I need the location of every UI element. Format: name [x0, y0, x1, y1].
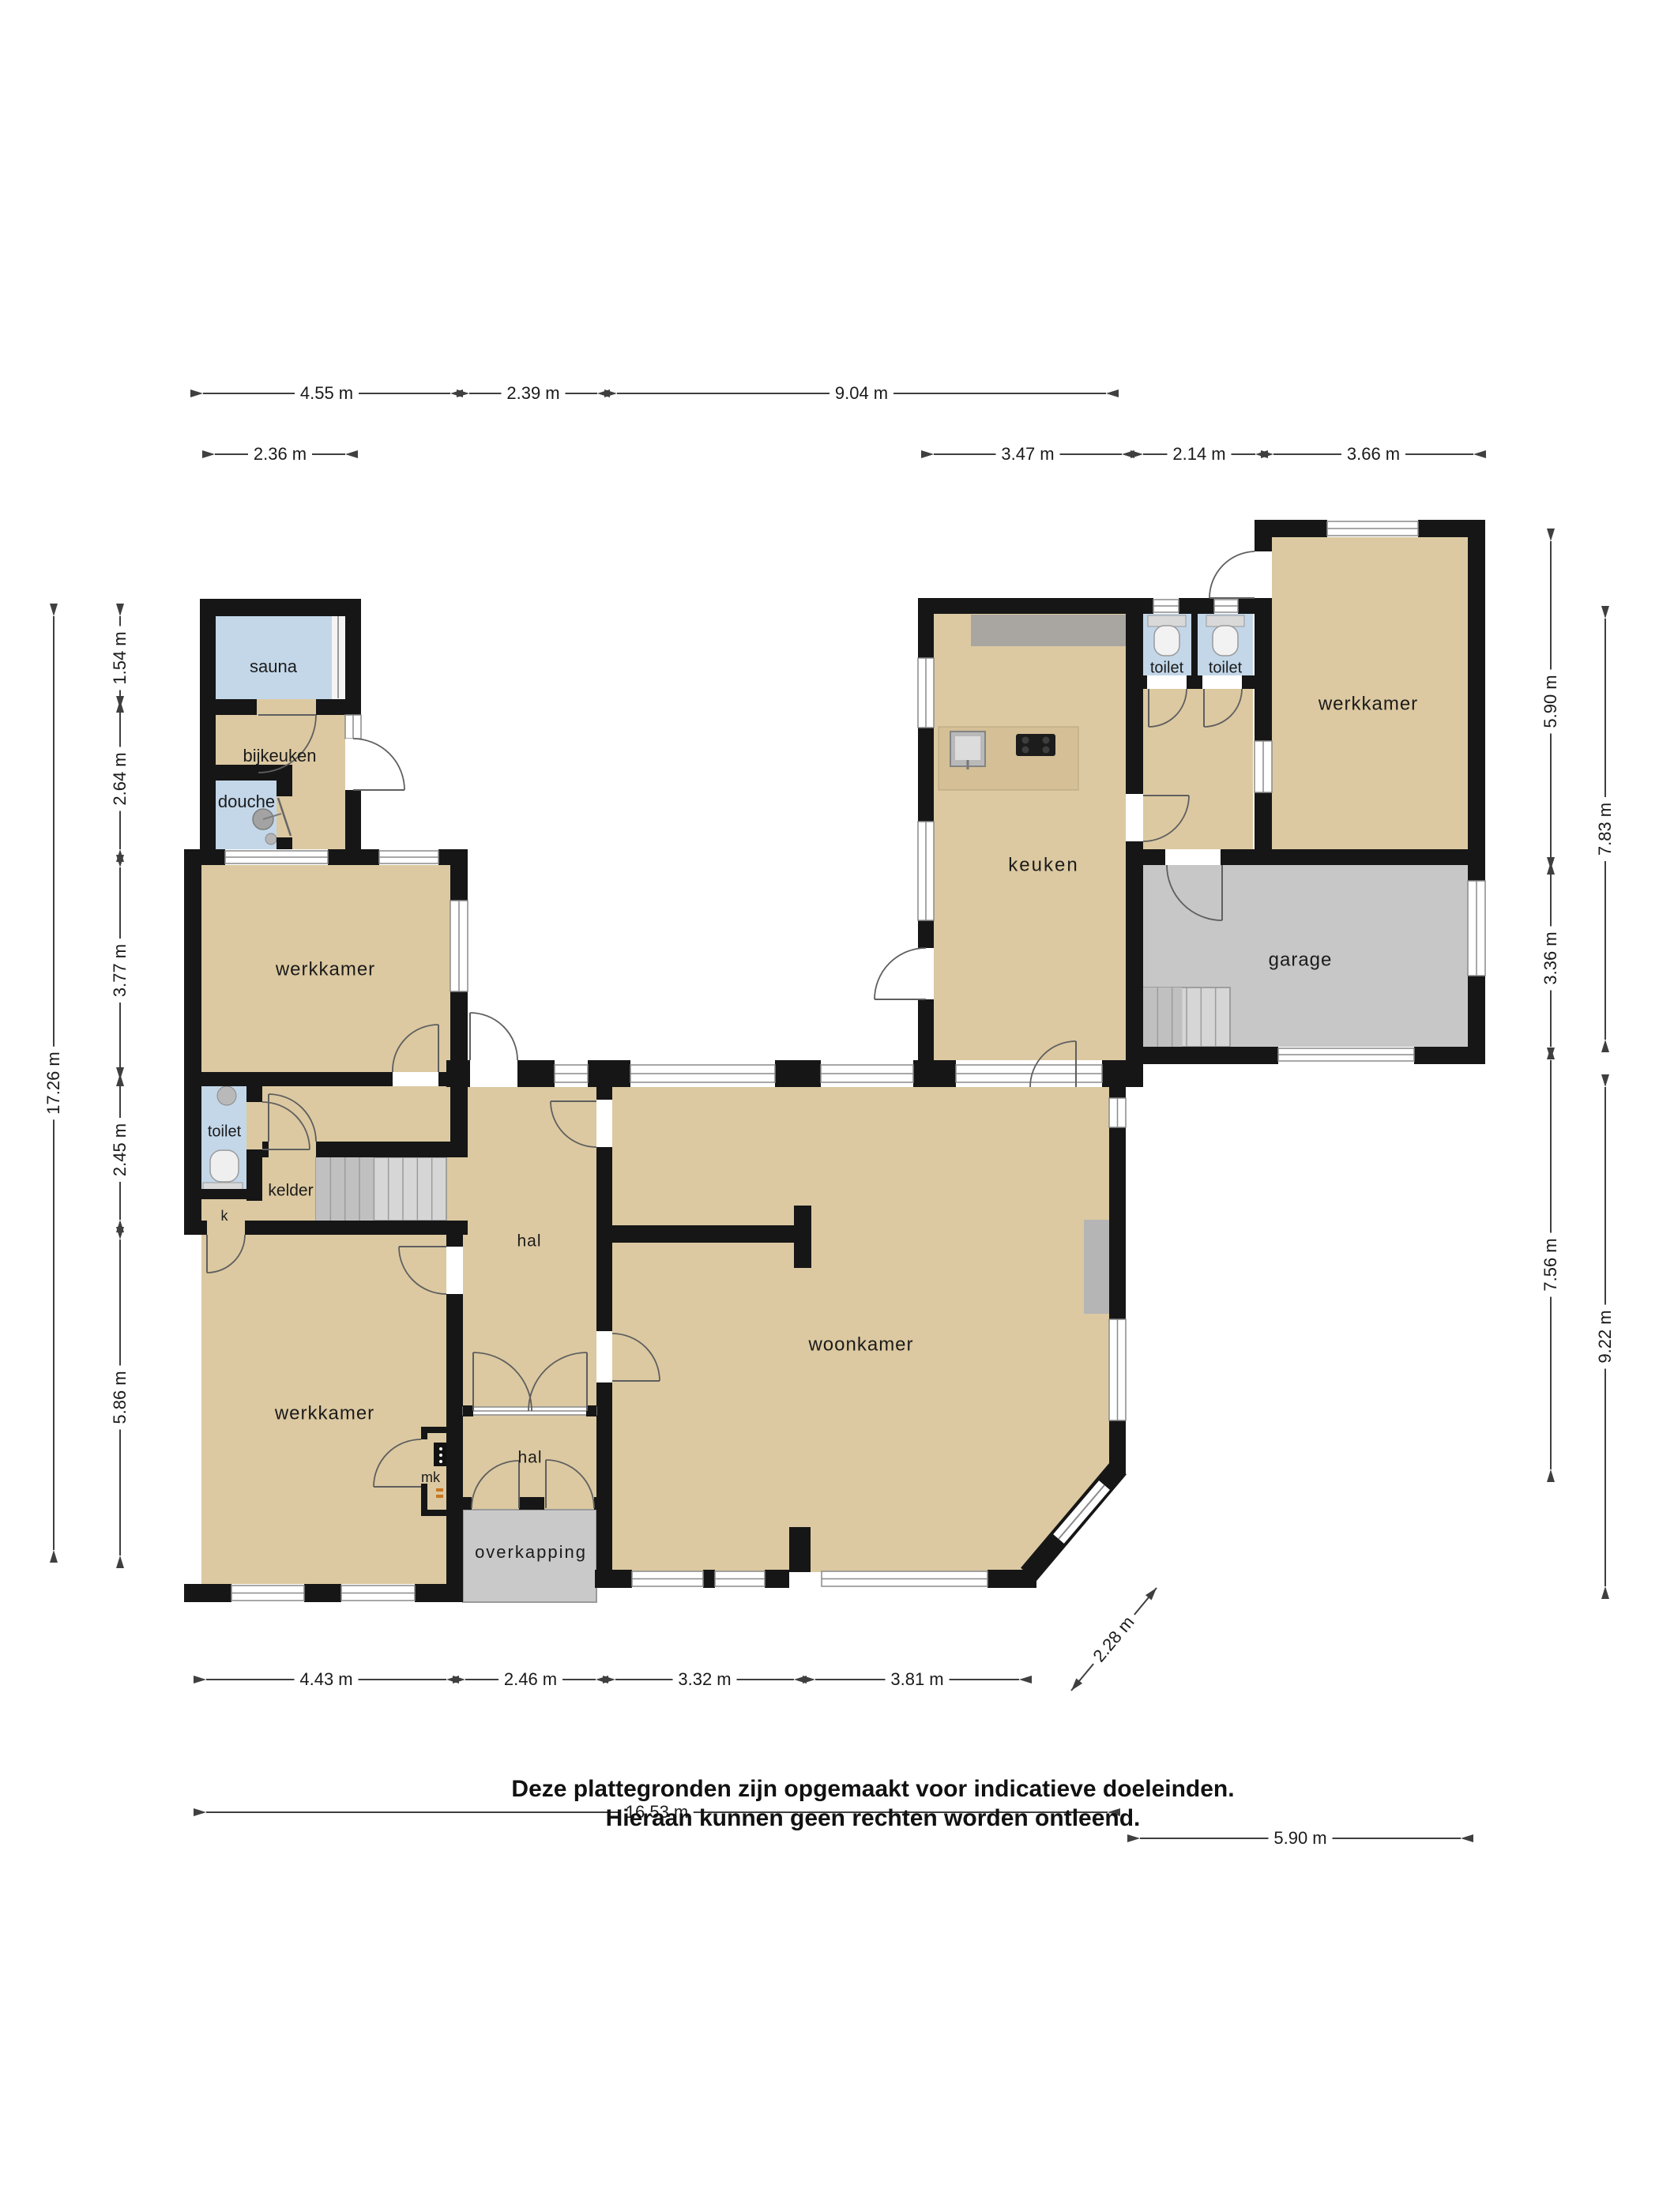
- dimension-label-top-sub-1: 2.36 m: [254, 444, 307, 464]
- room-label-werkkamer-rechts: werkkamer: [1318, 693, 1418, 714]
- dim-arrow: [345, 450, 358, 458]
- room-label-kelder: kelder: [268, 1182, 313, 1200]
- cooktop-burner: [1022, 737, 1029, 744]
- dim-label-group-left-total: 17.26 m: [43, 1047, 65, 1120]
- meter-dot: [439, 1454, 442, 1457]
- dim-arrow: [1473, 450, 1486, 458]
- wall: [449, 1433, 455, 1510]
- wall: [596, 1382, 612, 1570]
- dim-label-group-left-1: 1.54 m: [110, 626, 131, 690]
- dim-label-group-right-outer-2: 9.22 m: [1595, 1305, 1616, 1369]
- dimension-label-top-3: 9.04 m: [835, 383, 888, 403]
- wall: [1126, 614, 1143, 794]
- dimension-label-bottom-4: 3.81 m: [890, 1669, 943, 1689]
- wall: [184, 1086, 201, 1235]
- wall: [794, 1206, 811, 1268]
- chimney: [1084, 1220, 1109, 1314]
- floor-plan-page: saunabijkeukendouchewerkkamertoiletkkeld…: [0, 0, 1659, 2212]
- wall: [612, 1225, 794, 1243]
- wall: [703, 1570, 715, 1588]
- meter-fuse: [436, 1495, 443, 1498]
- wall: [1126, 1047, 1278, 1064]
- dimension-label-top-sub-3: 2.14 m: [1172, 444, 1225, 464]
- dim-arrow: [1130, 450, 1143, 458]
- dim-arrow: [194, 1676, 206, 1683]
- dim-arrow: [1547, 529, 1555, 541]
- dim-arrow: [1547, 1469, 1555, 1482]
- wall: [1143, 598, 1153, 614]
- wall: [517, 1060, 555, 1087]
- wall: [1468, 520, 1485, 881]
- wall: [345, 790, 361, 849]
- dim-label-group-left-3: 3.77 m: [110, 939, 131, 1003]
- dim-arrow: [803, 1676, 815, 1683]
- cooktop-burner: [1043, 737, 1050, 744]
- dim-arrow: [603, 1676, 615, 1683]
- wall: [421, 1510, 455, 1516]
- dimension-label-bottom-3: 3.32 m: [678, 1669, 731, 1689]
- disclaimer-line-1: Deze plattegronden zijn opgemaakt voor i…: [359, 1774, 1386, 1804]
- wall: [415, 1584, 463, 1602]
- wall: [918, 598, 1143, 614]
- wall: [184, 865, 201, 1086]
- double-door-post: [463, 1405, 473, 1416]
- dimension-label-bottom-2: 2.46 m: [504, 1669, 557, 1689]
- dim-arrow: [1601, 1586, 1609, 1599]
- wall: [594, 1497, 612, 1510]
- toilet-bowl: [1213, 626, 1238, 656]
- room-label-toilet-2: toilet: [1209, 659, 1243, 676]
- dimension-label-top-2: 2.39 m: [506, 383, 559, 403]
- wall: [595, 1570, 632, 1588]
- wall: [596, 1147, 612, 1331]
- wall: [345, 599, 361, 715]
- wall: [216, 699, 257, 715]
- dimension-label-right-2: 3.36 m: [1540, 931, 1560, 984]
- wall: [1191, 614, 1198, 675]
- wall: [450, 865, 468, 901]
- dimension-label-top-sub-2: 3.47 m: [1001, 444, 1054, 464]
- shower-drain: [265, 833, 276, 845]
- dim-label-group-left-2: 2.64 m: [110, 747, 131, 811]
- dim-arrow: [202, 450, 215, 458]
- wall: [446, 1235, 463, 1247]
- wall: [316, 1142, 468, 1157]
- dim-arrow: [1547, 857, 1555, 870]
- dim-arrow: [116, 1227, 124, 1240]
- dim-arrow: [50, 1550, 58, 1563]
- room-label-werkkamer-links: werkkamer: [275, 958, 375, 980]
- dim-arrow: [1461, 1834, 1473, 1842]
- wall: [200, 599, 361, 616]
- dimension-label-top-1: 4.55 m: [300, 383, 353, 403]
- dim-arrow: [190, 389, 203, 397]
- wall: [1126, 849, 1165, 865]
- dimension-label-left-4: 2.45 m: [110, 1123, 130, 1176]
- wall: [1187, 675, 1202, 689]
- dim-arrow: [1106, 389, 1119, 397]
- wall: [276, 837, 292, 849]
- wall: [184, 849, 225, 865]
- room-label-bijkeuken: bijkeuken: [243, 746, 317, 766]
- wall: [450, 1086, 468, 1142]
- dimension-label-diagonal: 2.28 m: [1089, 1612, 1138, 1666]
- dim-label-group-right-2: 3.36 m: [1540, 927, 1562, 991]
- dim-arrow: [1019, 1676, 1032, 1683]
- wall: [918, 728, 934, 822]
- dim-label-group-left-4: 2.45 m: [110, 1118, 131, 1182]
- toilet-bowl: [1154, 626, 1179, 656]
- room-keuken: [934, 614, 1126, 1060]
- room-label-hal-onder: hal: [517, 1449, 542, 1467]
- wall: [201, 1189, 262, 1199]
- dim-arrow: [116, 604, 124, 616]
- wall: [246, 1086, 262, 1102]
- wall: [1143, 675, 1147, 689]
- wall: [1179, 598, 1214, 614]
- room-label-woonkamer: woonkamer: [807, 1334, 913, 1355]
- room-hal-rechts: [1143, 689, 1253, 849]
- wall: [438, 849, 468, 865]
- wall: [200, 765, 280, 781]
- wall: [1221, 849, 1255, 865]
- wall: [1414, 1047, 1485, 1064]
- wall: [421, 1484, 427, 1510]
- dim-arrow: [116, 1556, 124, 1568]
- wall: [1255, 598, 1272, 741]
- wall: [184, 1072, 393, 1086]
- dim-arrow: [116, 696, 124, 709]
- dim-label-group-right-3: 7.56 m: [1540, 1233, 1562, 1297]
- dimension-label-left-5: 5.86 m: [110, 1371, 130, 1424]
- room-label-werkkamer-onder: werkkamer: [274, 1402, 374, 1424]
- room-label-hal-boven: hal: [517, 1232, 541, 1251]
- dimension-label-left-total: 17.26 m: [43, 1051, 63, 1115]
- kitchen-counter: [971, 615, 1126, 646]
- wall: [775, 1060, 821, 1087]
- room-label-kast-k: k: [221, 1208, 229, 1224]
- room-woonkamer: [612, 1087, 1109, 1572]
- wall: [304, 1584, 341, 1602]
- dimension-label-left-2: 2.64 m: [110, 752, 130, 805]
- dim-arrow: [1601, 1040, 1609, 1052]
- wall: [913, 1060, 956, 1087]
- dimension-label-top-sub-4: 3.66 m: [1347, 444, 1400, 464]
- dim-label-group-right-1: 5.90 m: [1540, 670, 1562, 734]
- room-hal: [463, 1087, 596, 1510]
- room-label-toilet-1: toilet: [1150, 659, 1184, 676]
- cooktop-burner: [1043, 747, 1050, 754]
- room-label-garage: garage: [1269, 949, 1333, 970]
- dim-label-group-diagonal: 2.28 m: [1085, 1608, 1143, 1671]
- wall: [1109, 1087, 1126, 1098]
- sink-toilet-links: [217, 1086, 236, 1105]
- dim-arrow: [604, 389, 617, 397]
- toilet-tank: [1148, 615, 1186, 626]
- meter-fuse: [436, 1488, 443, 1492]
- wall: [1255, 849, 1485, 865]
- toilet-bowl-links: [210, 1150, 239, 1182]
- wall: [421, 1433, 427, 1439]
- wall: [184, 1221, 207, 1235]
- dimension-label-left-1: 1.54 m: [110, 631, 130, 684]
- wall: [789, 1527, 811, 1572]
- dim-arrow: [1601, 1074, 1609, 1087]
- dim-label-group-left-5: 5.86 m: [110, 1366, 131, 1430]
- wall: [200, 715, 216, 849]
- wall: [184, 1584, 231, 1602]
- wall: [446, 1060, 470, 1087]
- dim-arrow: [1127, 1834, 1140, 1842]
- wall: [262, 1221, 468, 1235]
- dimension-label-bottom-1: 4.43 m: [299, 1669, 352, 1689]
- room-label-overkapping: overkapping: [475, 1542, 587, 1562]
- door-gap: [345, 739, 361, 790]
- cooktop-burner: [1022, 747, 1029, 754]
- door-arc: [1209, 551, 1255, 598]
- room-label-meterkast: mk: [421, 1469, 441, 1485]
- dim-arrow: [1601, 606, 1609, 619]
- meter-dot: [439, 1460, 442, 1463]
- door-arc: [470, 1013, 517, 1060]
- wall: [245, 1221, 262, 1235]
- wall: [200, 599, 216, 715]
- dimension-label-right-outer-1: 7.83 m: [1595, 803, 1615, 856]
- garage-stairs-shade: [1143, 987, 1183, 1047]
- disclaimer: Deze plattegronden zijn opgemaakt voor i…: [359, 1774, 1386, 1833]
- wall: [1255, 520, 1327, 537]
- dim-arrow: [116, 1067, 124, 1080]
- room-label-toilet-links: toilet: [208, 1123, 242, 1140]
- wall: [1109, 1127, 1126, 1319]
- meter-dot: [439, 1447, 442, 1450]
- dim-arrow: [194, 1808, 206, 1816]
- room-label-sauna: sauna: [250, 656, 298, 676]
- wall: [328, 849, 379, 865]
- wall: [519, 1497, 544, 1510]
- disclaimer-line-2: Hieraan kunnen geen rechten worden ontle…: [359, 1804, 1386, 1833]
- dimension-label-right-1: 5.90 m: [1540, 675, 1560, 728]
- wall: [918, 920, 934, 948]
- wall: [765, 1570, 789, 1588]
- wall: [421, 1427, 455, 1433]
- wall: [1126, 865, 1143, 1047]
- dimension-label-left-3: 3.77 m: [110, 944, 130, 997]
- wall: [316, 699, 361, 715]
- cooktop: [1016, 734, 1055, 756]
- floor-plan-svg: saunabijkeukendouchewerkkamertoiletkkeld…: [0, 0, 1659, 2212]
- dim-label-group-right-outer-1: 7.83 m: [1595, 797, 1616, 861]
- wall: [1102, 1060, 1143, 1087]
- dim-arrow: [921, 450, 934, 458]
- room-label-keuken: keuken: [1008, 854, 1078, 875]
- door-gap: [918, 948, 934, 999]
- room-label-douche: douche: [218, 792, 275, 811]
- toilet-tank: [1206, 615, 1244, 626]
- dimension-label-right-outer-2: 9.22 m: [1595, 1310, 1615, 1363]
- wall: [596, 1060, 612, 1100]
- dim-arrow: [50, 604, 58, 616]
- dimension-label-right-3: 7.56 m: [1540, 1238, 1560, 1291]
- kitchen-sink-basin: [955, 736, 980, 760]
- wall: [918, 999, 934, 1060]
